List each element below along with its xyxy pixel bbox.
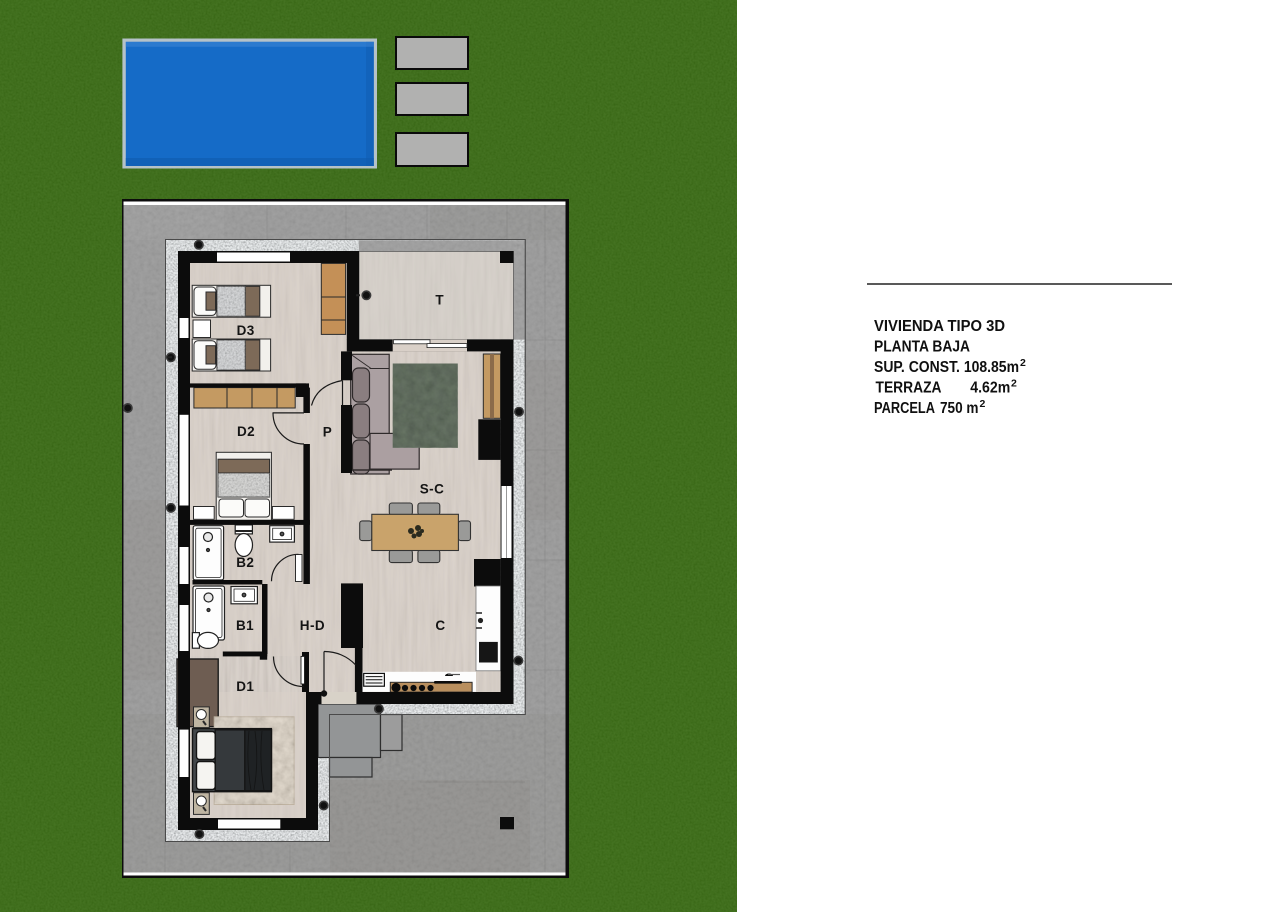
svg-text:PLANTA BAJA: PLANTA BAJA <box>874 339 970 356</box>
svg-text:H-D: H-D <box>300 618 325 633</box>
svg-text:2: 2 <box>1011 378 1017 390</box>
svg-text:S-C: S-C <box>420 481 444 496</box>
svg-text:D1: D1 <box>236 679 254 694</box>
svg-text:B2: B2 <box>236 555 254 570</box>
svg-text:D3: D3 <box>237 323 255 338</box>
svg-text:SUP. CONST. 108.85m: SUP. CONST. 108.85m <box>874 359 1019 376</box>
svg-text:2: 2 <box>1020 357 1026 369</box>
svg-text:T: T <box>435 293 444 308</box>
svg-text:D2: D2 <box>237 424 255 439</box>
svg-text:2: 2 <box>980 398 986 410</box>
svg-text:PARCELA: PARCELA <box>874 400 935 417</box>
svg-text:4.62m: 4.62m <box>970 380 1010 397</box>
svg-text:B1: B1 <box>236 618 254 633</box>
svg-text:TERRAZA: TERRAZA <box>876 380 942 397</box>
svg-text:P: P <box>323 425 332 440</box>
svg-text:C: C <box>435 618 445 633</box>
svg-text:750 m: 750 m <box>940 400 979 417</box>
svg-text:VIVIENDA TIPO 3D: VIVIENDA TIPO 3D <box>874 318 1005 335</box>
